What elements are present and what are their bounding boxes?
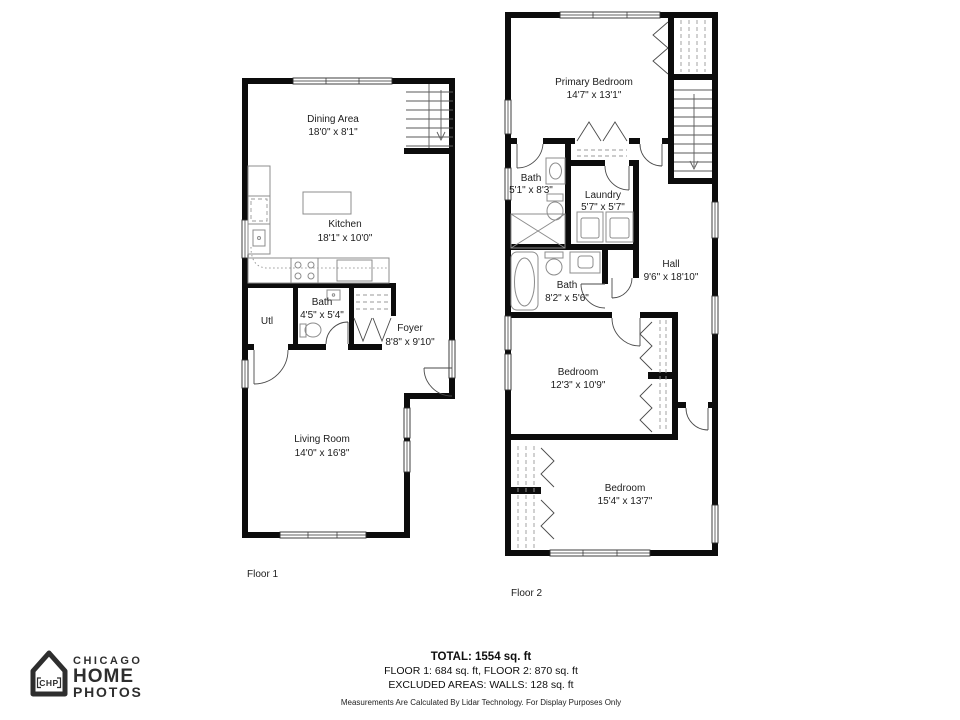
- room-label-bedroom2: Bedroom: [605, 483, 646, 494]
- room-label-bedroom1: Bedroom: [558, 367, 599, 378]
- utility-door-icon: [254, 350, 288, 384]
- room-dims-dining: 18'0" x 8'1": [308, 127, 358, 138]
- bedroom-door-icon: [686, 408, 708, 430]
- floor2-bedroom2-closet: [518, 446, 554, 548]
- entry-door-icon: [424, 368, 452, 396]
- floor1-foyer-closet: [354, 295, 391, 341]
- room-label-laundry: Laundry: [585, 190, 621, 201]
- floor2-laundry-fixtures: [577, 212, 633, 242]
- room-dims-bath: 4'5" x 5'4": [300, 310, 344, 321]
- room-label-living: Living Room: [294, 434, 350, 445]
- floor2-caption: Floor 2: [511, 588, 543, 599]
- closet-door-icon: [653, 22, 668, 48]
- room-dims-kitchen: 18'1" x 10'0": [318, 233, 373, 244]
- room-label-foyer: Foyer: [397, 323, 423, 334]
- room-label-bath1: Bath: [521, 173, 542, 184]
- logo-line-photos: PHOTOS: [73, 684, 143, 700]
- closet-door-icon: [354, 318, 372, 341]
- floor1-walls: [242, 78, 455, 538]
- footer-disclaimer: Measurements Are Calculated By Lidar Tec…: [341, 698, 621, 707]
- closet-door-icon: [612, 278, 632, 298]
- floor1-windows: [242, 78, 455, 538]
- room-dims-hall: 9'6" x 18'10": [644, 272, 699, 283]
- room-label-kitchen: Kitchen: [328, 219, 361, 230]
- room-label-primary: Primary Bedroom: [555, 77, 633, 88]
- room-label-bath: Bath: [312, 297, 333, 308]
- bifold-door-icon: [541, 500, 554, 539]
- room-dims-bedroom2: 15'4" x 13'7": [598, 496, 653, 507]
- bathtub-icon: [511, 252, 538, 310]
- bedroom-door-icon: [612, 318, 640, 346]
- footer: TOTAL: 1554 sq. ft FLOOR 1: 684 sq. ft, …: [341, 651, 621, 707]
- room-dims-foyer: 8'8" x 9'10": [385, 337, 435, 348]
- room-label-hall: Hall: [662, 259, 679, 270]
- floorplan-page: Dining Area 18'0" x 8'1" Kitchen 18'1" x…: [0, 0, 960, 720]
- bath-door-icon: [517, 144, 543, 168]
- floor2-primary-closet: [653, 20, 705, 74]
- room-dims-living: 14'0" x 16'8": [295, 448, 350, 459]
- laundry-door-icon: [605, 166, 629, 190]
- room-dims-bath1: 5'1" x 8'3": [509, 185, 553, 196]
- bath-sink-icon: [570, 252, 600, 273]
- closet-door-icon: [653, 48, 668, 74]
- logo-badge-text: CHP: [39, 678, 58, 688]
- toilet-icon: [545, 252, 563, 258]
- bath-door-icon: [326, 322, 348, 344]
- footer-excluded: EXCLUDED AREAS: WALLS: 128 sq. ft: [388, 679, 573, 691]
- chp-logo: CHP CHICAGO HOME PHOTOS: [33, 653, 143, 700]
- bifold-door-icon: [640, 322, 652, 370]
- floor2-bath1-fixtures: [511, 158, 565, 248]
- floor1-plan: Dining Area 18'0" x 8'1" Kitchen 18'1" x…: [242, 78, 455, 580]
- closet-door-icon: [603, 122, 627, 141]
- floor2-stairs: [674, 90, 712, 171]
- room-label-dining: Dining Area: [307, 114, 359, 125]
- room-dims-bath2: 8'2" x 5'6": [545, 293, 589, 304]
- kitchen-island: [303, 192, 351, 214]
- closet-door-icon: [577, 122, 601, 141]
- room-label-utl: Utl: [261, 316, 273, 327]
- room-dims-primary: 14'7" x 13'1": [567, 90, 622, 101]
- floor1-kitchen-fixtures: [248, 166, 389, 283]
- floor2-linen-closet: [612, 278, 632, 298]
- room-dims-laundry: 5'7" x 5'7": [581, 202, 625, 213]
- primary-bedroom-door-icon: [640, 144, 662, 166]
- bifold-door-icon: [640, 384, 652, 432]
- floor2-plan: Primary Bedroom 14'7" x 13'1" Bath 5'1" …: [505, 12, 718, 599]
- floor2-hall-closet: [577, 122, 627, 156]
- footer-floors: FLOOR 1: 684 sq. ft, FLOOR 2: 870 sq. ft: [384, 665, 578, 677]
- floor1-stairs: [406, 84, 453, 148]
- bath-sink-icon: [546, 158, 565, 184]
- footer-total: TOTAL: 1554 sq. ft: [431, 651, 532, 663]
- floor1-caption: Floor 1: [247, 569, 279, 580]
- room-dims-bedroom1: 12'3" x 10'9": [551, 380, 606, 391]
- bifold-door-icon: [541, 448, 554, 487]
- room-label-bath2: Bath: [557, 280, 578, 291]
